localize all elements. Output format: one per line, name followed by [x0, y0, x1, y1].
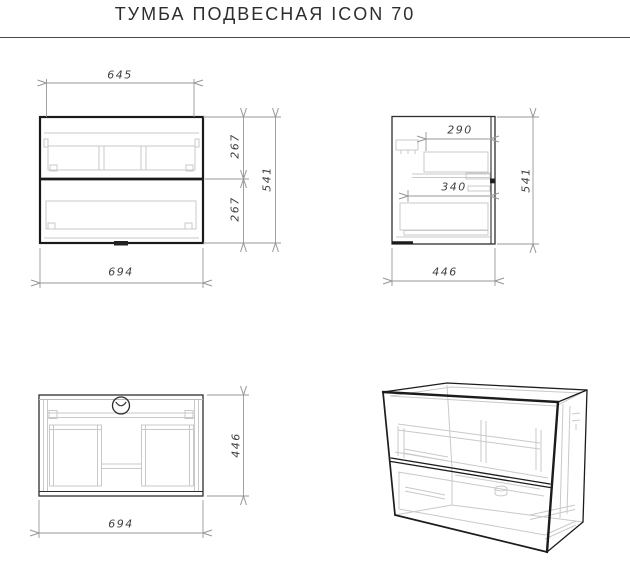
side-view-linework [392, 117, 539, 287]
technical-drawing-sheet: ТУМБА ПОДВЕСНАЯ ICON 70 [0, 0, 630, 561]
dim-label-top-depth: 446 [230, 432, 243, 458]
perspective-view-linework [383, 383, 587, 552]
front-view-dimensions [40, 79, 281, 288]
dim-label-side-upper-depth: 290 [447, 124, 473, 137]
dim-label-side-lower-depth: 340 [441, 181, 467, 194]
front-view-linework [40, 79, 281, 288]
dim-label-front-lower-height: 267 [229, 196, 242, 222]
top-view-dimensions [39, 395, 249, 538]
side-view-dimensions [392, 117, 539, 286]
drain-hole-notch [116, 402, 126, 406]
wall-mount-tab [114, 241, 128, 246]
dim-label-front-upper-height: 267 [229, 133, 242, 159]
drawer-gap-mark [490, 179, 496, 184]
dim-label-front-outer-width: 694 [108, 266, 134, 279]
dim-label-front-inner-width: 645 [107, 69, 133, 82]
dim-label-top-width: 694 [108, 518, 134, 531]
drawing-canvas [0, 0, 630, 561]
dim-label-front-total-height: 541 [261, 166, 274, 192]
top-view-linework [39, 395, 249, 538]
dim-label-side-depth: 446 [432, 266, 458, 279]
dim-label-side-total-height: 541 [520, 167, 533, 193]
